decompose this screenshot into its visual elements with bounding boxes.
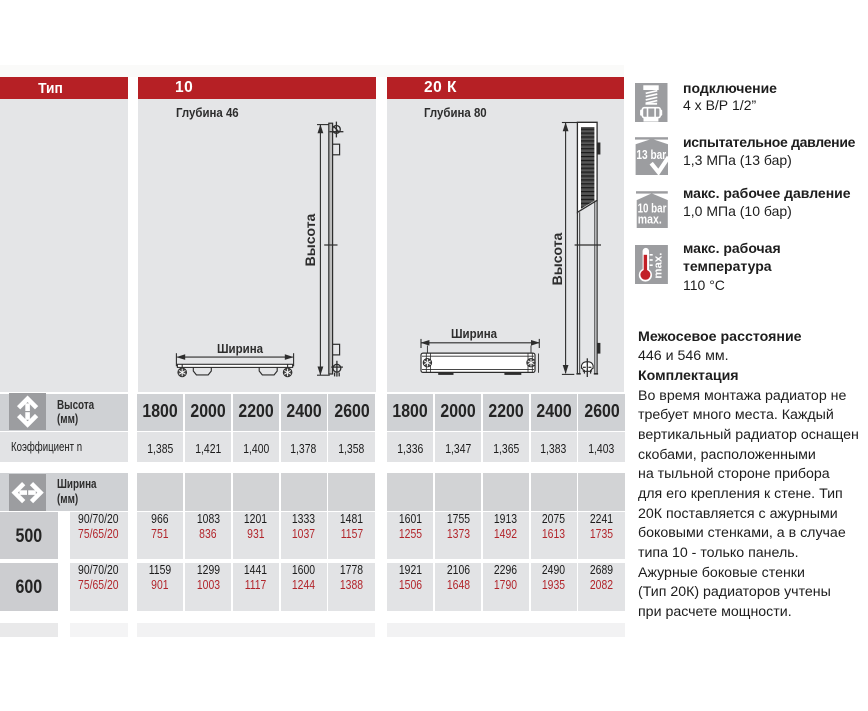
svg-text:max.: max. bbox=[652, 252, 664, 278]
svg-text:13 bar: 13 bar bbox=[636, 147, 666, 162]
svg-text:max.: max. bbox=[638, 211, 662, 226]
